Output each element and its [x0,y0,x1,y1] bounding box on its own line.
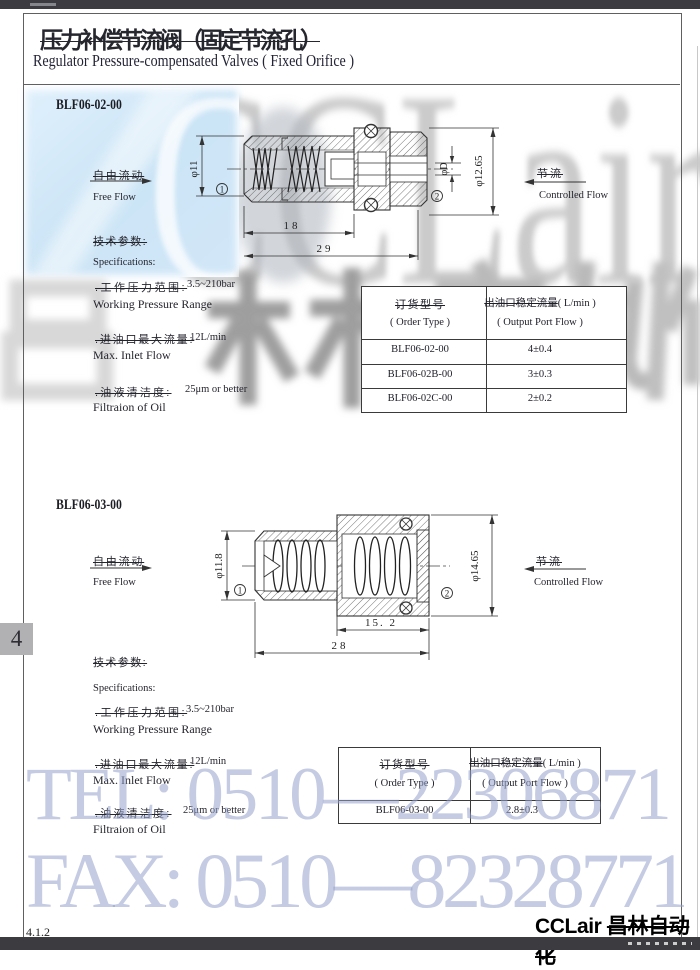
svg-text:φ11: φ11 [188,161,200,178]
svg-text:φ12.65: φ12.65 [473,155,485,187]
svg-text:φ14.65: φ14.65 [469,550,481,582]
svg-text:18: 18 [284,220,301,232]
svg-text:φ11.8: φ11.8 [213,553,225,579]
svg-text:15. 2: 15. 2 [365,617,397,629]
svg-text:1: 1 [238,586,243,596]
svg-text:φD: φD [439,163,450,176]
svg-text:28: 28 [332,640,349,652]
svg-text:2: 2 [435,192,440,202]
svg-text:2: 2 [445,589,450,599]
svg-text:29: 29 [317,243,334,255]
svg-text:1: 1 [220,185,225,195]
